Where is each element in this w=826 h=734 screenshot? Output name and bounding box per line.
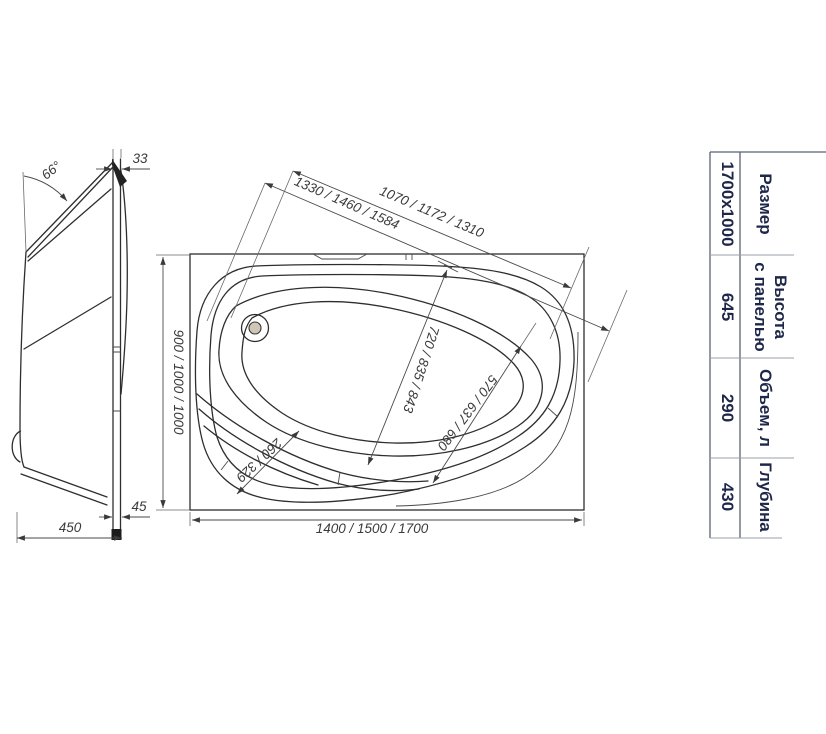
- side-rim-section: [112, 159, 127, 187]
- drawing-canvas: 66° 33 450 45 900: [0, 0, 826, 734]
- panel-offset-label: 45: [131, 499, 147, 514]
- frame-top-dip: [313, 254, 412, 260]
- top-view: 900 / 1000 / 1000 1400 / 1500 / 1700 133…: [156, 171, 627, 536]
- diag-full-witness-left: [207, 183, 265, 321]
- side-view: 66° 33 450 45: [12, 149, 150, 543]
- bowl-rim: [219, 287, 542, 456]
- table-header-height-line2: с панелью: [751, 262, 770, 351]
- angle-label: 66°: [39, 158, 65, 183]
- table-value-size: 1700x1000: [718, 161, 737, 246]
- side-waterline: [24, 297, 111, 349]
- side-bottom-lines: [21, 467, 107, 505]
- table-value-height: 645: [718, 293, 737, 321]
- spec-table: Размер Высота с панелью Объем, л Глубина…: [710, 152, 826, 538]
- side-rim-lines: [26, 162, 113, 261]
- side-panel-lines: [113, 159, 121, 529]
- side-panel-ticks: [113, 347, 121, 411]
- bowl-width-label: 570 / 637 / 680: [434, 372, 500, 453]
- diag-inner-label: 1070 / 1172 / 1310: [377, 183, 486, 241]
- rim-thickness-extensions: [113, 149, 121, 158]
- side-drain-bump: [12, 431, 20, 462]
- diag-inner-dim: [293, 171, 571, 288]
- bowl-length-dim: [368, 270, 447, 465]
- diag-full-witness-right: [588, 290, 627, 382]
- bowl-width-dim: [433, 346, 521, 483]
- table-value-volume: 290: [718, 394, 737, 422]
- rim-thickness-label: 33: [132, 151, 148, 166]
- table-header-height-line1: Высота: [771, 275, 790, 340]
- side-panel-curve: [121, 168, 128, 394]
- table-value-depth: 430: [718, 483, 737, 511]
- bowl-width-witness: [521, 323, 536, 346]
- table-header-size: Размер: [756, 173, 775, 234]
- base-depth-label: 450: [59, 520, 82, 535]
- bowl-bottom: [242, 302, 523, 444]
- side-left-edge: [20, 252, 26, 467]
- angle-extension-line: [23, 172, 26, 252]
- table-header-depth: Глубина: [756, 462, 775, 532]
- drain-hole: [249, 322, 261, 334]
- table-header-volume: Объем, л: [756, 369, 775, 447]
- deck-step-curves: [197, 394, 428, 491]
- width-label: 900 / 1000 / 1000: [171, 329, 186, 435]
- bathtub-technical-drawing: 66° 33 450 45 900: [0, 0, 826, 734]
- length-label: 1400 / 1500 / 1700: [316, 521, 429, 536]
- diag-full-label: 1330 / 1460 / 1584: [292, 174, 401, 233]
